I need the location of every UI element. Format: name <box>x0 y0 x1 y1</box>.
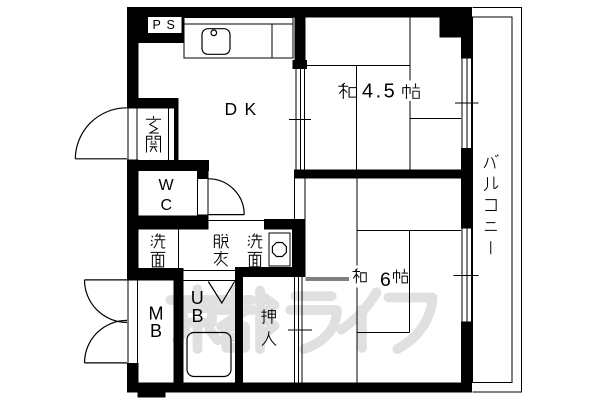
svg-text:B: B <box>150 321 162 341</box>
svg-text:C: C <box>161 197 173 214</box>
svg-text:U: U <box>191 288 204 308</box>
svg-text:6: 6 <box>380 269 391 291</box>
svg-text:B: B <box>192 306 204 326</box>
svg-text:S: S <box>167 18 175 32</box>
svg-text:W: W <box>159 177 175 194</box>
svg-text:4.5: 4.5 <box>362 81 397 103</box>
svg-text:K: K <box>245 99 257 119</box>
svg-text:D: D <box>225 99 238 119</box>
svg-text:P: P <box>153 18 161 32</box>
